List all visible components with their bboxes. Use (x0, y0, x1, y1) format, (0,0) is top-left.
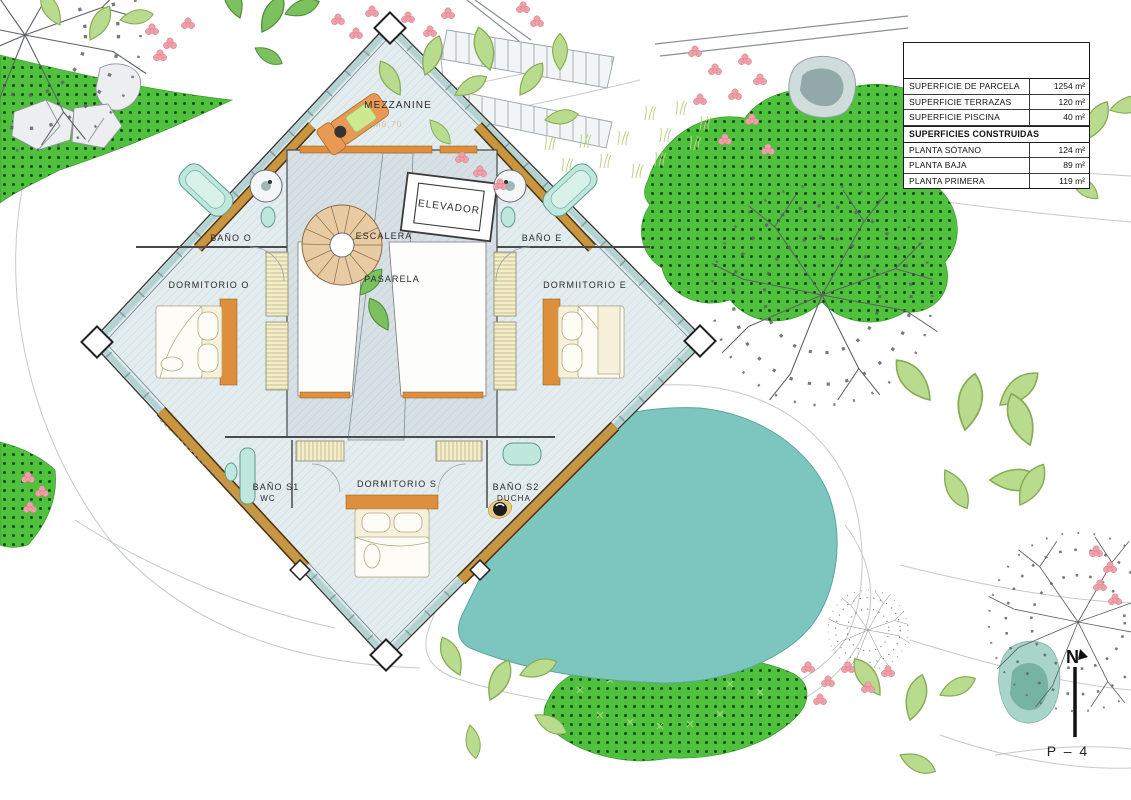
row-label: PLANTA BAJA (904, 158, 1029, 173)
areas-table: SUPERFICIE DE PARCELA 1254 m² SUPERFICIE… (903, 42, 1090, 189)
mezzanine-label: MEZZANINE (364, 100, 432, 111)
areas-table-title-space (904, 43, 1089, 79)
row-label: PLANTA PRIMERA (904, 174, 1029, 189)
east-wall-cabinet (598, 306, 620, 374)
pasarela-label: PASARELA (364, 274, 420, 284)
row-label: SUPERFICIE PISCINA (904, 110, 1029, 125)
row-value: 124 m² (1029, 143, 1089, 158)
row-value: 40 m² (1029, 110, 1089, 125)
table-row: PLANTA BAJA 89 m² (904, 158, 1089, 174)
mezzanine-level-label: +M6,70 (367, 119, 402, 129)
bano-s2-sub-label: DUCHA (497, 494, 531, 503)
row-value: 1254 m² (1029, 79, 1089, 94)
table-row: SUPERFICIE PISCINA 40 m² (904, 110, 1089, 126)
table-row: SUPERFICIE TERRAZAS 120 m² (904, 95, 1089, 111)
pond (789, 56, 856, 117)
escalera-label: ESCALERA (356, 231, 413, 241)
row-value: 89 m² (1029, 158, 1089, 173)
row-label: SUPERFICIE TERRAZAS (904, 95, 1029, 110)
north-label: N (1066, 647, 1079, 667)
bano-s1-sub-label: WC (260, 494, 276, 503)
table-section-header: SUPERFICIES CONSTRUIDAS (904, 126, 1089, 143)
dormitorio-o-label: DORMITORIO O (168, 280, 249, 290)
row-label: PLANTA SÓTANO (904, 143, 1029, 158)
row-value: 120 m² (1029, 95, 1089, 110)
teal-bush (999, 641, 1060, 723)
row-value: 119 m² (1029, 174, 1089, 189)
table-row: PLANTA SÓTANO 124 m² (904, 143, 1089, 159)
table-row: PLANTA PRIMERA 119 m² (904, 174, 1089, 189)
sheet-number-label: P – 4 (1047, 743, 1089, 759)
elevator: ELEVADOR (401, 173, 497, 242)
bed-south (346, 495, 438, 577)
row-label: SUPERFICIE DE PARCELA (904, 79, 1029, 94)
bano-o-label: BAÑO O (210, 233, 252, 243)
dormitorio-e-label: DORMIITORIO E (543, 280, 627, 290)
site-plan-sheet: ELEVADOR (0, 0, 1131, 800)
bano-e-label: BAÑO E (522, 233, 563, 243)
table-row: SUPERFICIE DE PARCELA 1254 m² (904, 79, 1089, 95)
bed-west (156, 299, 237, 385)
bano-s2-label: BAÑO S2 (493, 482, 540, 492)
dormitorio-s-label: DORMITORIO S (357, 479, 437, 489)
bano-s1-label: BAÑO S1 (253, 482, 300, 492)
